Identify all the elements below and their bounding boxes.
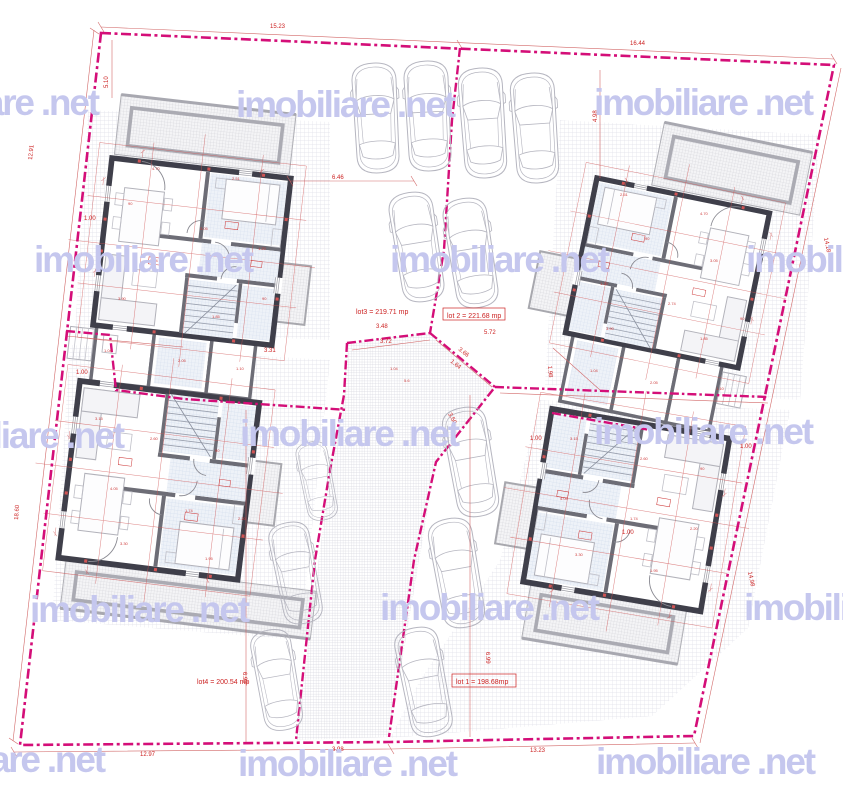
svg-text:imobiliare .net: imobiliare .net — [390, 239, 610, 280]
svg-text:90: 90 — [215, 448, 220, 453]
svg-text:1.74: 1.74 — [630, 516, 639, 521]
svg-text:5.6: 5.6 — [404, 378, 410, 383]
svg-text:90: 90 — [128, 201, 133, 206]
svg-text:3.90: 3.90 — [118, 296, 127, 301]
svg-text:3.15: 3.15 — [570, 436, 579, 441]
svg-text:90: 90 — [700, 466, 705, 471]
svg-text:imobiliare .net: imobiliare .net — [238, 743, 458, 784]
svg-text:imobiliare .net: imobiliare .net — [0, 82, 100, 123]
svg-text:imobiliare .net: imobiliare .net — [596, 741, 816, 782]
svg-text:3.05: 3.05 — [710, 258, 719, 263]
svg-text:2.60: 2.60 — [150, 436, 159, 441]
svg-text:2.05: 2.05 — [178, 358, 187, 363]
svg-text:lot3 = 219.71 mp: lot3 = 219.71 mp — [356, 309, 408, 316]
svg-text:5.10: 5.10 — [104, 76, 110, 88]
svg-text:imobiliare .net: imobiliare .net — [594, 82, 814, 123]
svg-text:imobiliare .net: imobiliare .net — [240, 413, 460, 454]
svg-text:1.00: 1.00 — [84, 216, 96, 222]
svg-text:imobiliare .net: imobiliare .net — [744, 587, 843, 628]
svg-text:1.85: 1.85 — [212, 314, 221, 319]
svg-text:2.51: 2.51 — [620, 192, 629, 197]
svg-text:3.30: 3.30 — [575, 552, 584, 557]
svg-text:1.00: 1.00 — [622, 530, 634, 536]
svg-text:2.20: 2.20 — [690, 526, 699, 531]
svg-text:1.10: 1.10 — [716, 386, 725, 391]
svg-text:1.00: 1.00 — [76, 370, 88, 376]
svg-text:1.74: 1.74 — [185, 508, 194, 513]
svg-text:1.04: 1.04 — [390, 366, 399, 371]
svg-text:imobiliare .net: imobiliare .net — [0, 739, 106, 780]
svg-text:3.31: 3.31 — [264, 348, 276, 354]
svg-text:13.23: 13.23 — [530, 748, 546, 754]
svg-text:1.95: 1.95 — [650, 568, 659, 573]
svg-text:3.30: 3.30 — [120, 541, 129, 546]
svg-text:lot 1 = 198.68mp: lot 1 = 198.68mp — [456, 679, 508, 686]
svg-text:15.23: 15.23 — [270, 24, 286, 30]
svg-text:90: 90 — [740, 316, 745, 321]
svg-text:2.60: 2.60 — [640, 456, 649, 461]
svg-text:18.60: 18.60 — [14, 504, 21, 520]
svg-text:2.20: 2.20 — [238, 516, 247, 521]
svg-text:2.51: 2.51 — [232, 176, 241, 181]
svg-text:6.99: 6.99 — [484, 652, 490, 665]
svg-text:6.46: 6.46 — [332, 175, 344, 181]
svg-text:90: 90 — [645, 236, 650, 241]
svg-text:4.70: 4.70 — [152, 166, 161, 171]
svg-text:1.00: 1.00 — [530, 436, 542, 442]
svg-text:imobiliare .net: imobiliare .net — [746, 239, 843, 280]
svg-text:3.90: 3.90 — [606, 326, 615, 331]
svg-text:16.44: 16.44 — [630, 41, 646, 47]
svg-text:imobiliare .net: imobiliare .net — [236, 84, 456, 125]
svg-text:3.72: 3.72 — [380, 339, 392, 345]
svg-text:1.04: 1.04 — [590, 368, 599, 373]
svg-text:5.72: 5.72 — [484, 330, 496, 336]
svg-text:4.70: 4.70 — [700, 211, 709, 216]
svg-text:12.97: 12.97 — [140, 752, 156, 758]
svg-text:1.98: 1.98 — [546, 366, 553, 379]
svg-text:2.74: 2.74 — [668, 301, 677, 306]
svg-text:3.05: 3.05 — [200, 226, 209, 231]
svg-text:4.05: 4.05 — [110, 486, 119, 491]
svg-text:imobiliare .net: imobiliare .net — [0, 415, 125, 456]
svg-text:1.04: 1.04 — [104, 348, 113, 353]
svg-text:imobiliare .net: imobiliare .net — [34, 239, 254, 280]
svg-text:imobiliare .net: imobiliare .net — [30, 589, 250, 630]
svg-text:3.48: 3.48 — [376, 324, 388, 330]
svg-text:1.10: 1.10 — [236, 366, 245, 371]
svg-text:lot4 = 200.54 mp: lot4 = 200.54 mp — [197, 679, 249, 686]
svg-text:1.20: 1.20 — [258, 246, 267, 251]
svg-text:90: 90 — [262, 296, 267, 301]
svg-text:lot 2 = 221.68 mp: lot 2 = 221.68 mp — [447, 313, 501, 320]
svg-text:4.05: 4.05 — [560, 496, 569, 501]
svg-text:1.95: 1.95 — [205, 556, 214, 561]
svg-text:imobiliare .net: imobiliare .net — [594, 411, 814, 452]
svg-text:1.20: 1.20 — [600, 281, 609, 286]
svg-text:imobiliare .net: imobiliare .net — [380, 587, 600, 628]
svg-text:2.05: 2.05 — [650, 380, 659, 385]
svg-text:1.85: 1.85 — [700, 336, 709, 341]
